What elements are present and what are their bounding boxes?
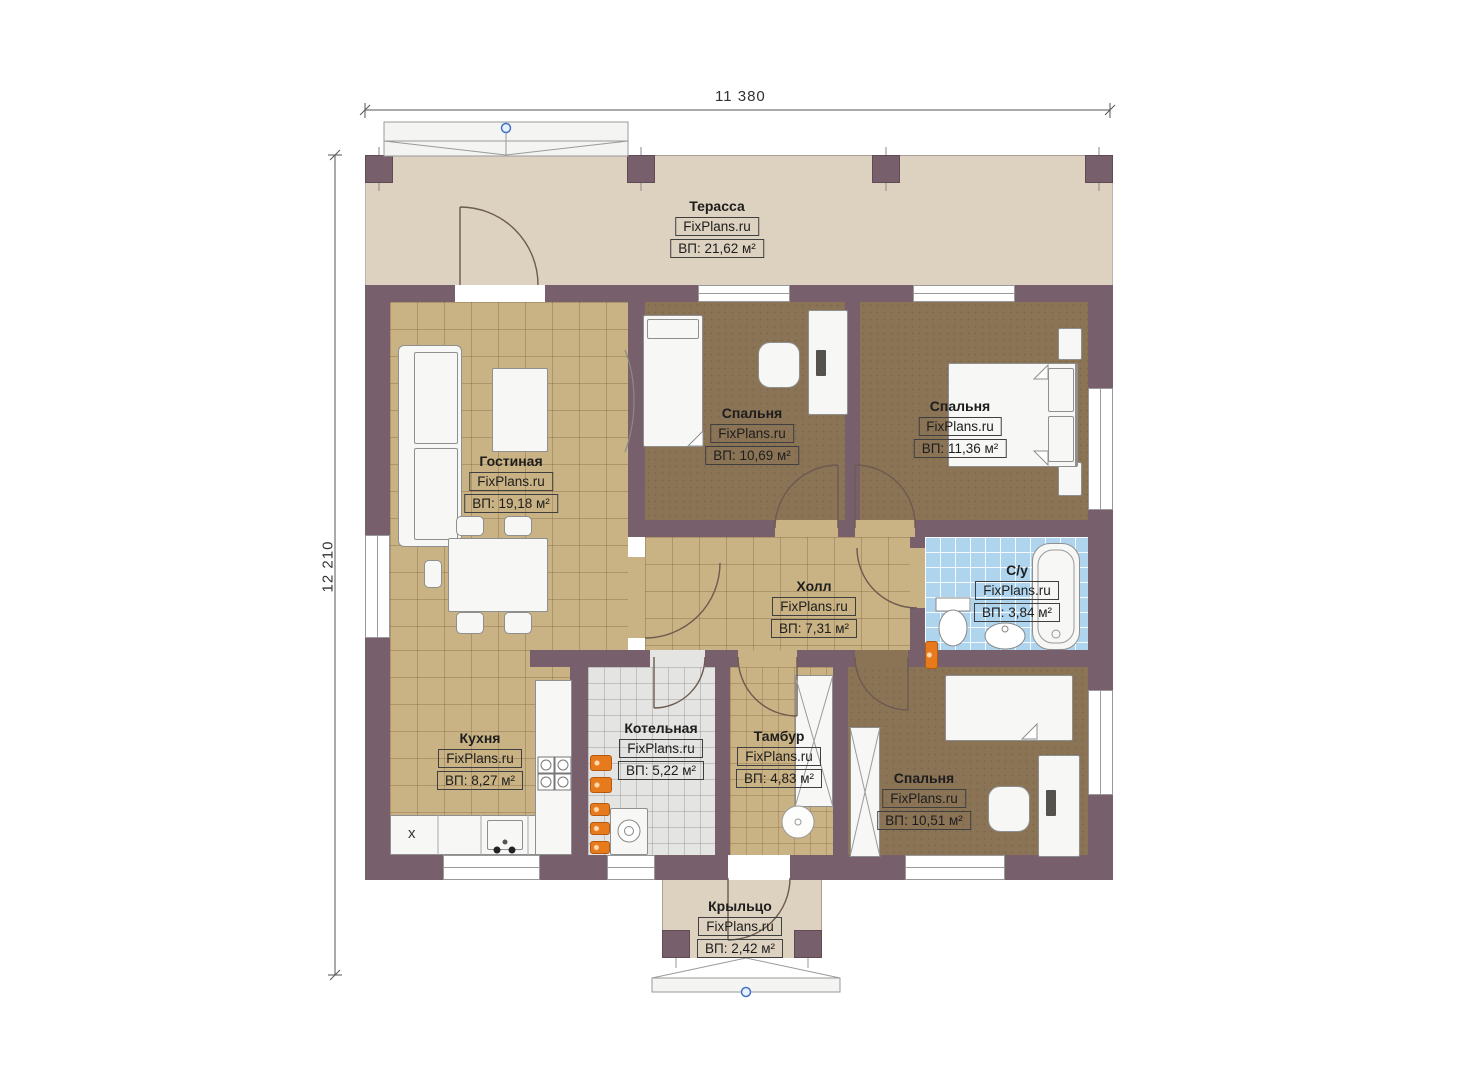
room-label-tambour: Тамбур FixPlans.ru ВП: 4,83 м² [736, 728, 822, 788]
section-marker [502, 124, 511, 133]
porch-roof [652, 958, 840, 997]
room-name: Холл [796, 578, 831, 594]
watermark-box: FixPlans.ru [438, 749, 522, 768]
room-name: Спальня [722, 405, 782, 421]
room-label-living: Гостиная FixPlans.ru ВП: 19,18 м² [464, 453, 558, 513]
room-name: Котельная [624, 720, 697, 736]
watermark-box: FixPlans.ru [772, 597, 856, 616]
room-label-porch: Крыльцо FixPlans.ru ВП: 2,42 м² [697, 898, 783, 958]
room-name: Крыльцо [708, 898, 772, 914]
terrace-canopy [384, 122, 628, 156]
area-box: ВП: 7,31 м² [771, 619, 857, 638]
kitchen-details [438, 815, 528, 855]
room-name: Тамбур [754, 728, 805, 744]
watermark-box: FixPlans.ru [737, 747, 821, 766]
floor-plan-canvas: x [0, 0, 1474, 1080]
room-name: С/у [1006, 562, 1028, 578]
room-label-kitchen: Кухня FixPlans.ru ВП: 8,27 м² [437, 730, 523, 790]
room-label-boiler: Котельная FixPlans.ru ВП: 5,22 м² [618, 720, 704, 780]
watermark-box: FixPlans.ru [675, 217, 759, 236]
area-box: ВП: 21,62 м² [670, 239, 764, 258]
room-label-terrace: Терасса FixPlans.ru ВП: 21,62 м² [670, 198, 764, 258]
room-name: Гостиная [479, 453, 542, 469]
area-box: ВП: 2,42 м² [697, 939, 783, 958]
watermark-box: FixPlans.ru [882, 789, 966, 808]
watermark-box: FixPlans.ru [698, 917, 782, 936]
area-box: ВП: 10,69 м² [705, 446, 799, 465]
room-label-bedroom3: Спальня FixPlans.ru ВП: 10,51 м² [877, 770, 971, 830]
washer-drum [618, 820, 640, 842]
watermark-box: FixPlans.ru [710, 424, 794, 443]
room-label-bathroom: С/у FixPlans.ru ВП: 3,84 м² [974, 562, 1060, 622]
room-label-bedroom2: Спальня FixPlans.ru ВП: 11,36 м² [914, 398, 1007, 458]
room-label-hall: Холл FixPlans.ru ВП: 7,31 м² [771, 578, 857, 638]
door-swings [460, 207, 917, 940]
area-box: ВП: 5,22 м² [618, 761, 704, 780]
area-box: ВП: 8,27 м² [437, 771, 523, 790]
watermark-box: FixPlans.ru [975, 581, 1059, 600]
stool [782, 806, 814, 838]
room-label-bedroom1: Спальня FixPlans.ru ВП: 10,69 м² [705, 405, 799, 465]
stove [538, 757, 571, 790]
room-name: Терасса [689, 198, 745, 214]
watermark-box: FixPlans.ru [469, 472, 553, 491]
watermark-box: FixPlans.ru [619, 739, 703, 758]
watermark-box: FixPlans.ru [918, 417, 1002, 436]
room-name: Спальня [894, 770, 954, 786]
dimension-width-label: 11 380 [715, 88, 766, 105]
area-box: ВП: 3,84 м² [974, 603, 1060, 622]
room-name: Кухня [460, 730, 501, 746]
room-name: Спальня [930, 398, 990, 414]
area-box: ВП: 4,83 м² [736, 769, 822, 788]
curved-partition [625, 350, 634, 452]
dimension-height-label: 12 210 [319, 541, 336, 593]
area-box: ВП: 10,51 м² [877, 811, 971, 830]
area-box: ВП: 19,18 м² [464, 494, 558, 513]
section-marker [742, 988, 751, 997]
area-box: ВП: 11,36 м² [914, 439, 1007, 458]
